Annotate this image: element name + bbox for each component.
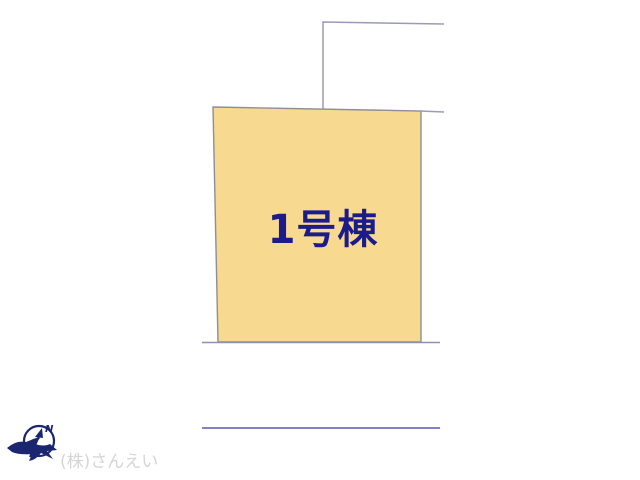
parcel-top-boundary-extension-line <box>420 111 444 112</box>
company-watermark: (株)さんえい <box>60 452 158 472</box>
compass-north-label: N <box>45 424 54 435</box>
site-plan-diagram: 1号棟 N (株)さんえい <box>0 0 640 480</box>
parcel-label: 1号棟 <box>268 207 379 253</box>
site-plan-drawing: 1号棟 N (株)さんえい <box>0 0 640 480</box>
